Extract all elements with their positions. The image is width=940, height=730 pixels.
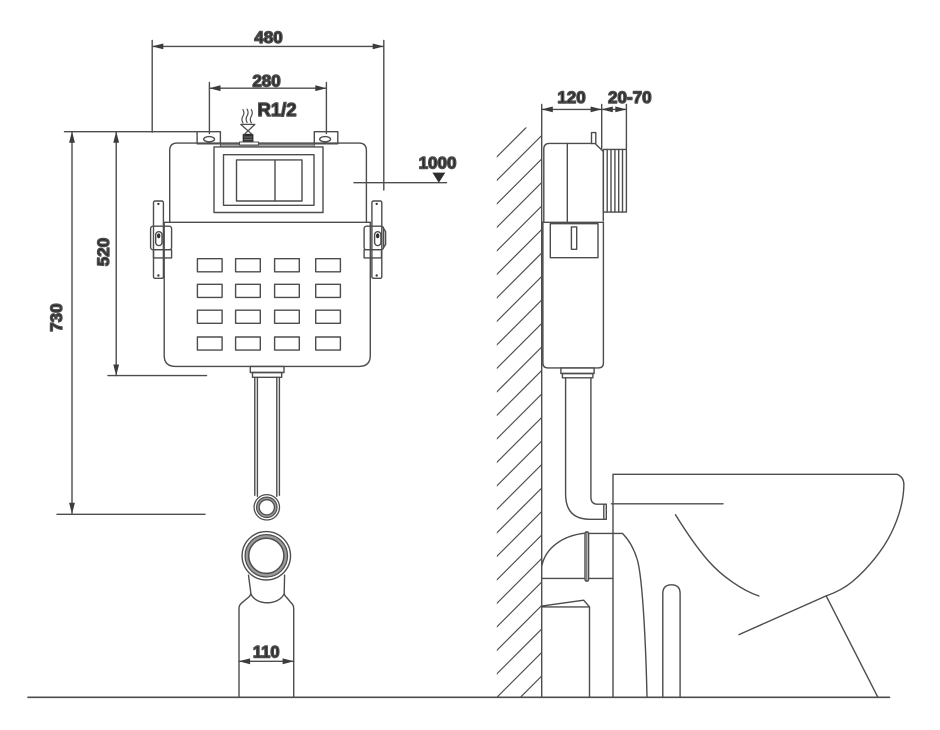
svg-text:480: 480 (254, 28, 282, 47)
svg-text:520: 520 (94, 238, 113, 266)
svg-text:110: 110 (253, 644, 280, 662)
svg-text:120: 120 (557, 88, 585, 107)
svg-text:R1/2: R1/2 (258, 99, 297, 120)
svg-text:1000: 1000 (419, 154, 457, 173)
svg-text:730: 730 (47, 303, 66, 331)
svg-text:20-70: 20-70 (608, 88, 651, 107)
svg-text:280: 280 (252, 71, 280, 90)
